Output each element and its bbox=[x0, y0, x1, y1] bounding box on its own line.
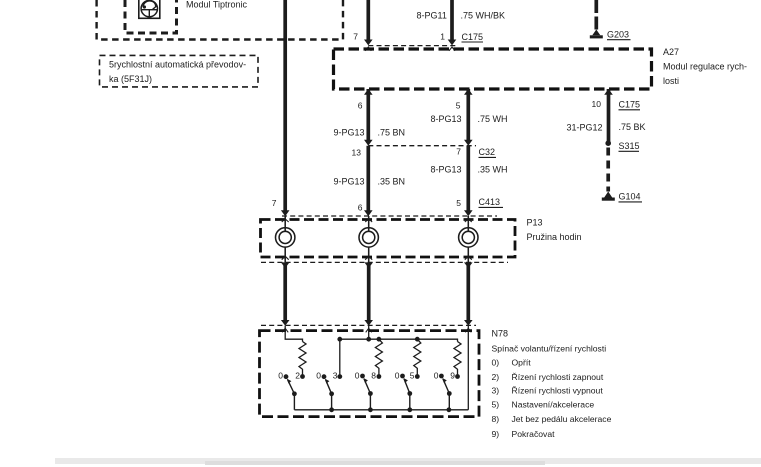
svg-text:5): 5) bbox=[492, 400, 500, 410]
svg-text:Jet bez pedálu akcelerace: Jet bez pedálu akcelerace bbox=[512, 414, 612, 424]
svg-text:A27: A27 bbox=[663, 47, 679, 57]
svg-text:Spínač volantu/řízení rychlost: Spínač volantu/řízení rychlosti bbox=[492, 344, 607, 354]
svg-text:9-PG13: 9-PG13 bbox=[334, 128, 365, 138]
svg-text:Řízení rychlosti zapnout: Řízení rychlosti zapnout bbox=[512, 372, 604, 382]
svg-text:.35 WH: .35 WH bbox=[478, 165, 508, 175]
svg-text:7: 7 bbox=[353, 32, 358, 42]
svg-text:9: 9 bbox=[450, 370, 455, 380]
svg-text:Pružina hodin: Pružina hodin bbox=[527, 232, 582, 242]
svg-text:ka (5F31J): ka (5F31J) bbox=[109, 74, 152, 84]
svg-text:8): 8) bbox=[492, 414, 500, 424]
svg-text:7: 7 bbox=[456, 147, 461, 157]
svg-text:0: 0 bbox=[395, 370, 400, 380]
svg-text:0: 0 bbox=[316, 370, 321, 380]
svg-text:3: 3 bbox=[333, 370, 338, 380]
svg-text:losti: losti bbox=[663, 76, 679, 86]
svg-text:5: 5 bbox=[456, 100, 461, 110]
svg-text:0: 0 bbox=[278, 370, 283, 380]
svg-text:0: 0 bbox=[355, 370, 360, 380]
svg-text:0): 0) bbox=[492, 358, 500, 368]
svg-text:5: 5 bbox=[456, 198, 461, 208]
svg-text:6: 6 bbox=[358, 203, 363, 213]
svg-text:N78: N78 bbox=[492, 329, 509, 339]
svg-text:Nastavení/akcelerace: Nastavení/akcelerace bbox=[512, 400, 595, 410]
svg-text:S315: S315 bbox=[619, 141, 640, 151]
svg-text:Opřít: Opřít bbox=[512, 358, 532, 368]
svg-text:Modul regulace rych-: Modul regulace rych- bbox=[663, 62, 747, 72]
svg-text:5: 5 bbox=[410, 370, 415, 380]
svg-text:Řízení rychlosti vypnout: Řízení rychlosti vypnout bbox=[512, 386, 604, 396]
svg-text:P13: P13 bbox=[527, 217, 543, 227]
svg-text:Modul Tiptronic: Modul Tiptronic bbox=[186, 0, 248, 10]
svg-text:10: 10 bbox=[592, 99, 602, 109]
svg-text:9): 9) bbox=[492, 429, 500, 439]
svg-text:C175: C175 bbox=[619, 100, 641, 110]
svg-text:6: 6 bbox=[358, 100, 363, 110]
svg-text:31-PG12: 31-PG12 bbox=[567, 123, 603, 133]
svg-text:.75 BK: .75 BK bbox=[619, 122, 646, 132]
svg-text:.75 WH: .75 WH bbox=[478, 114, 508, 124]
svg-text:9-PG13: 9-PG13 bbox=[334, 176, 365, 186]
svg-text:5rychlostní automatická převod: 5rychlostní automatická převodov- bbox=[109, 59, 246, 69]
svg-text:3): 3) bbox=[492, 386, 500, 396]
svg-text:C413: C413 bbox=[479, 197, 501, 207]
svg-text:2): 2) bbox=[492, 372, 500, 382]
svg-text:8: 8 bbox=[371, 370, 376, 380]
svg-text:.75 WH/BK: .75 WH/BK bbox=[461, 11, 506, 21]
svg-text:C32: C32 bbox=[479, 147, 496, 157]
svg-text:Pokračovat: Pokračovat bbox=[512, 429, 556, 439]
svg-text:.35 BN: .35 BN bbox=[378, 176, 406, 186]
svg-text:G203: G203 bbox=[607, 29, 629, 39]
svg-text:2: 2 bbox=[295, 370, 300, 380]
svg-text:.75 BN: .75 BN bbox=[378, 128, 406, 138]
svg-text:8-PG13: 8-PG13 bbox=[431, 114, 462, 124]
svg-text:C175: C175 bbox=[462, 32, 484, 42]
svg-text:1: 1 bbox=[440, 32, 445, 42]
svg-text:13: 13 bbox=[352, 148, 362, 158]
svg-text:7: 7 bbox=[272, 198, 277, 208]
svg-text:G104: G104 bbox=[619, 192, 641, 202]
svg-text:8-PG11: 8-PG11 bbox=[417, 11, 447, 21]
svg-text:8-PG13: 8-PG13 bbox=[431, 165, 462, 175]
svg-text:0: 0 bbox=[434, 370, 439, 380]
